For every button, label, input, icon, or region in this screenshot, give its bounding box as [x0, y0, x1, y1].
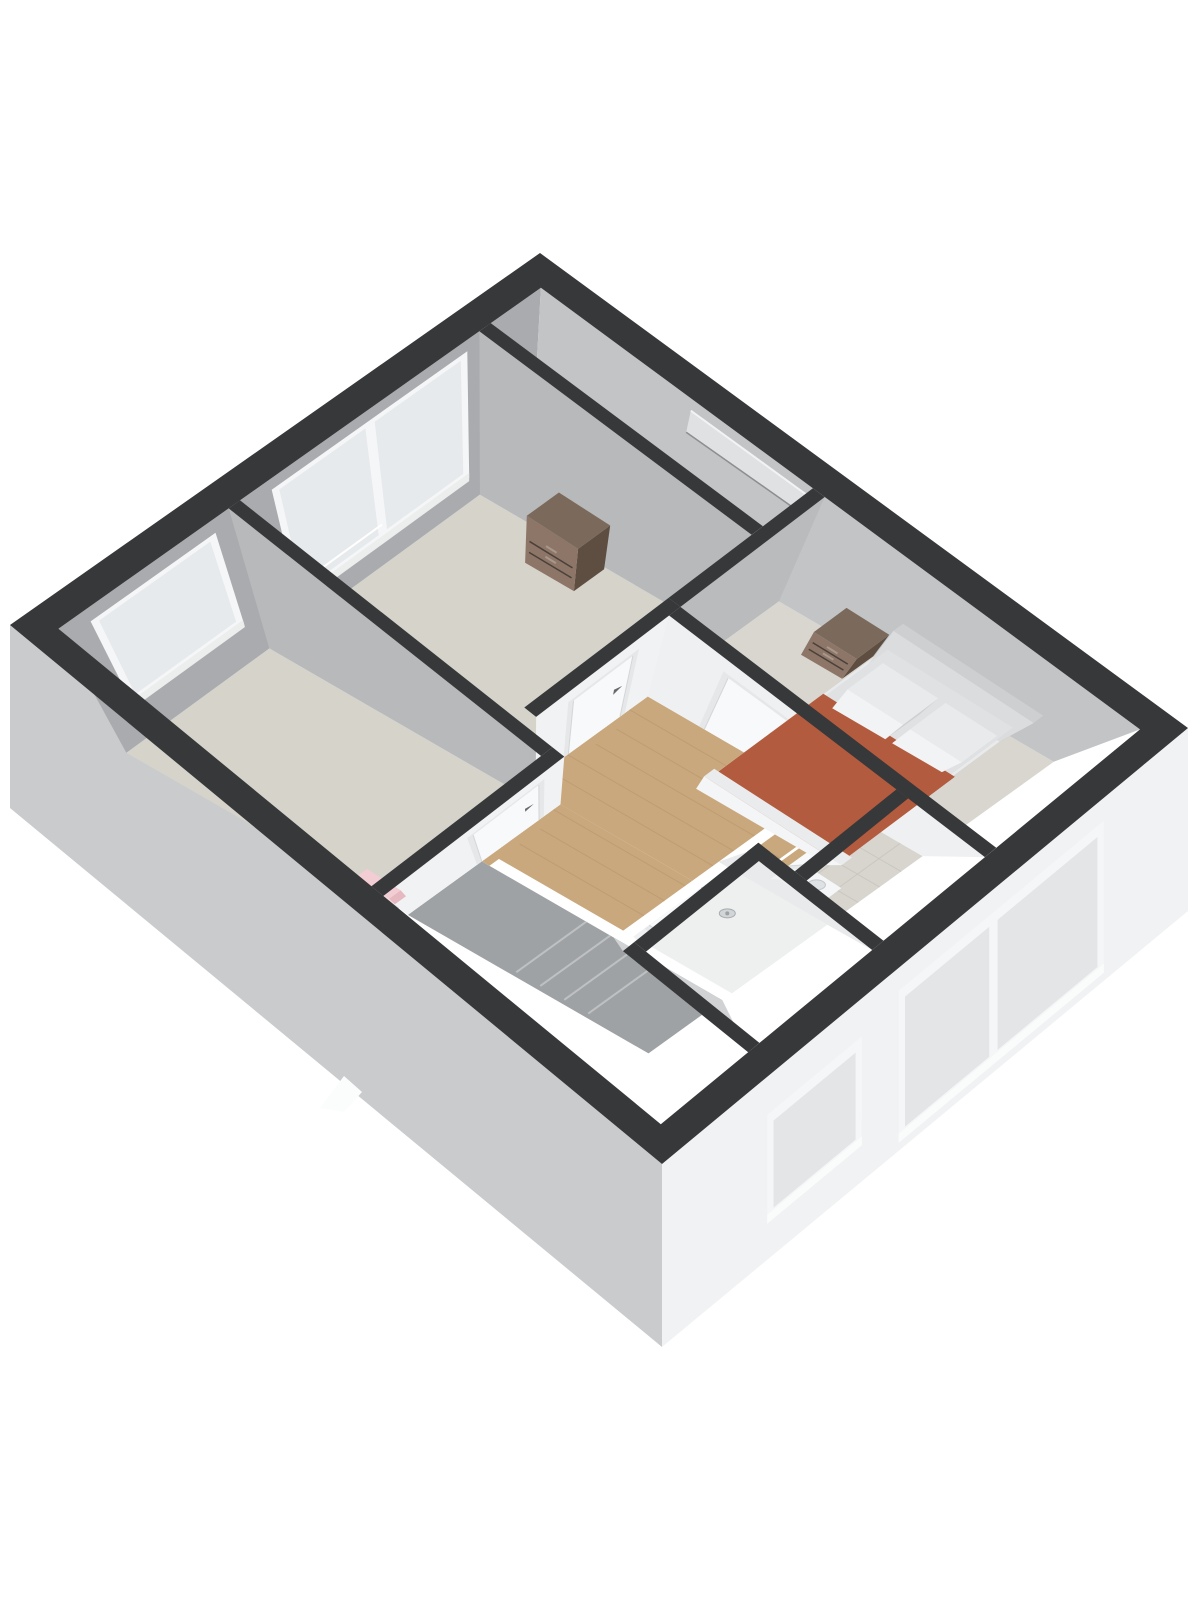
- floorplan-svg: [0, 0, 1200, 1600]
- shower-drain-hole: [725, 911, 729, 915]
- floorplan-3d-render: 3D isometric floor plan render (upper fl…: [0, 0, 1200, 1600]
- window-bedroom-right-exterior-mullion: [989, 916, 997, 1061]
